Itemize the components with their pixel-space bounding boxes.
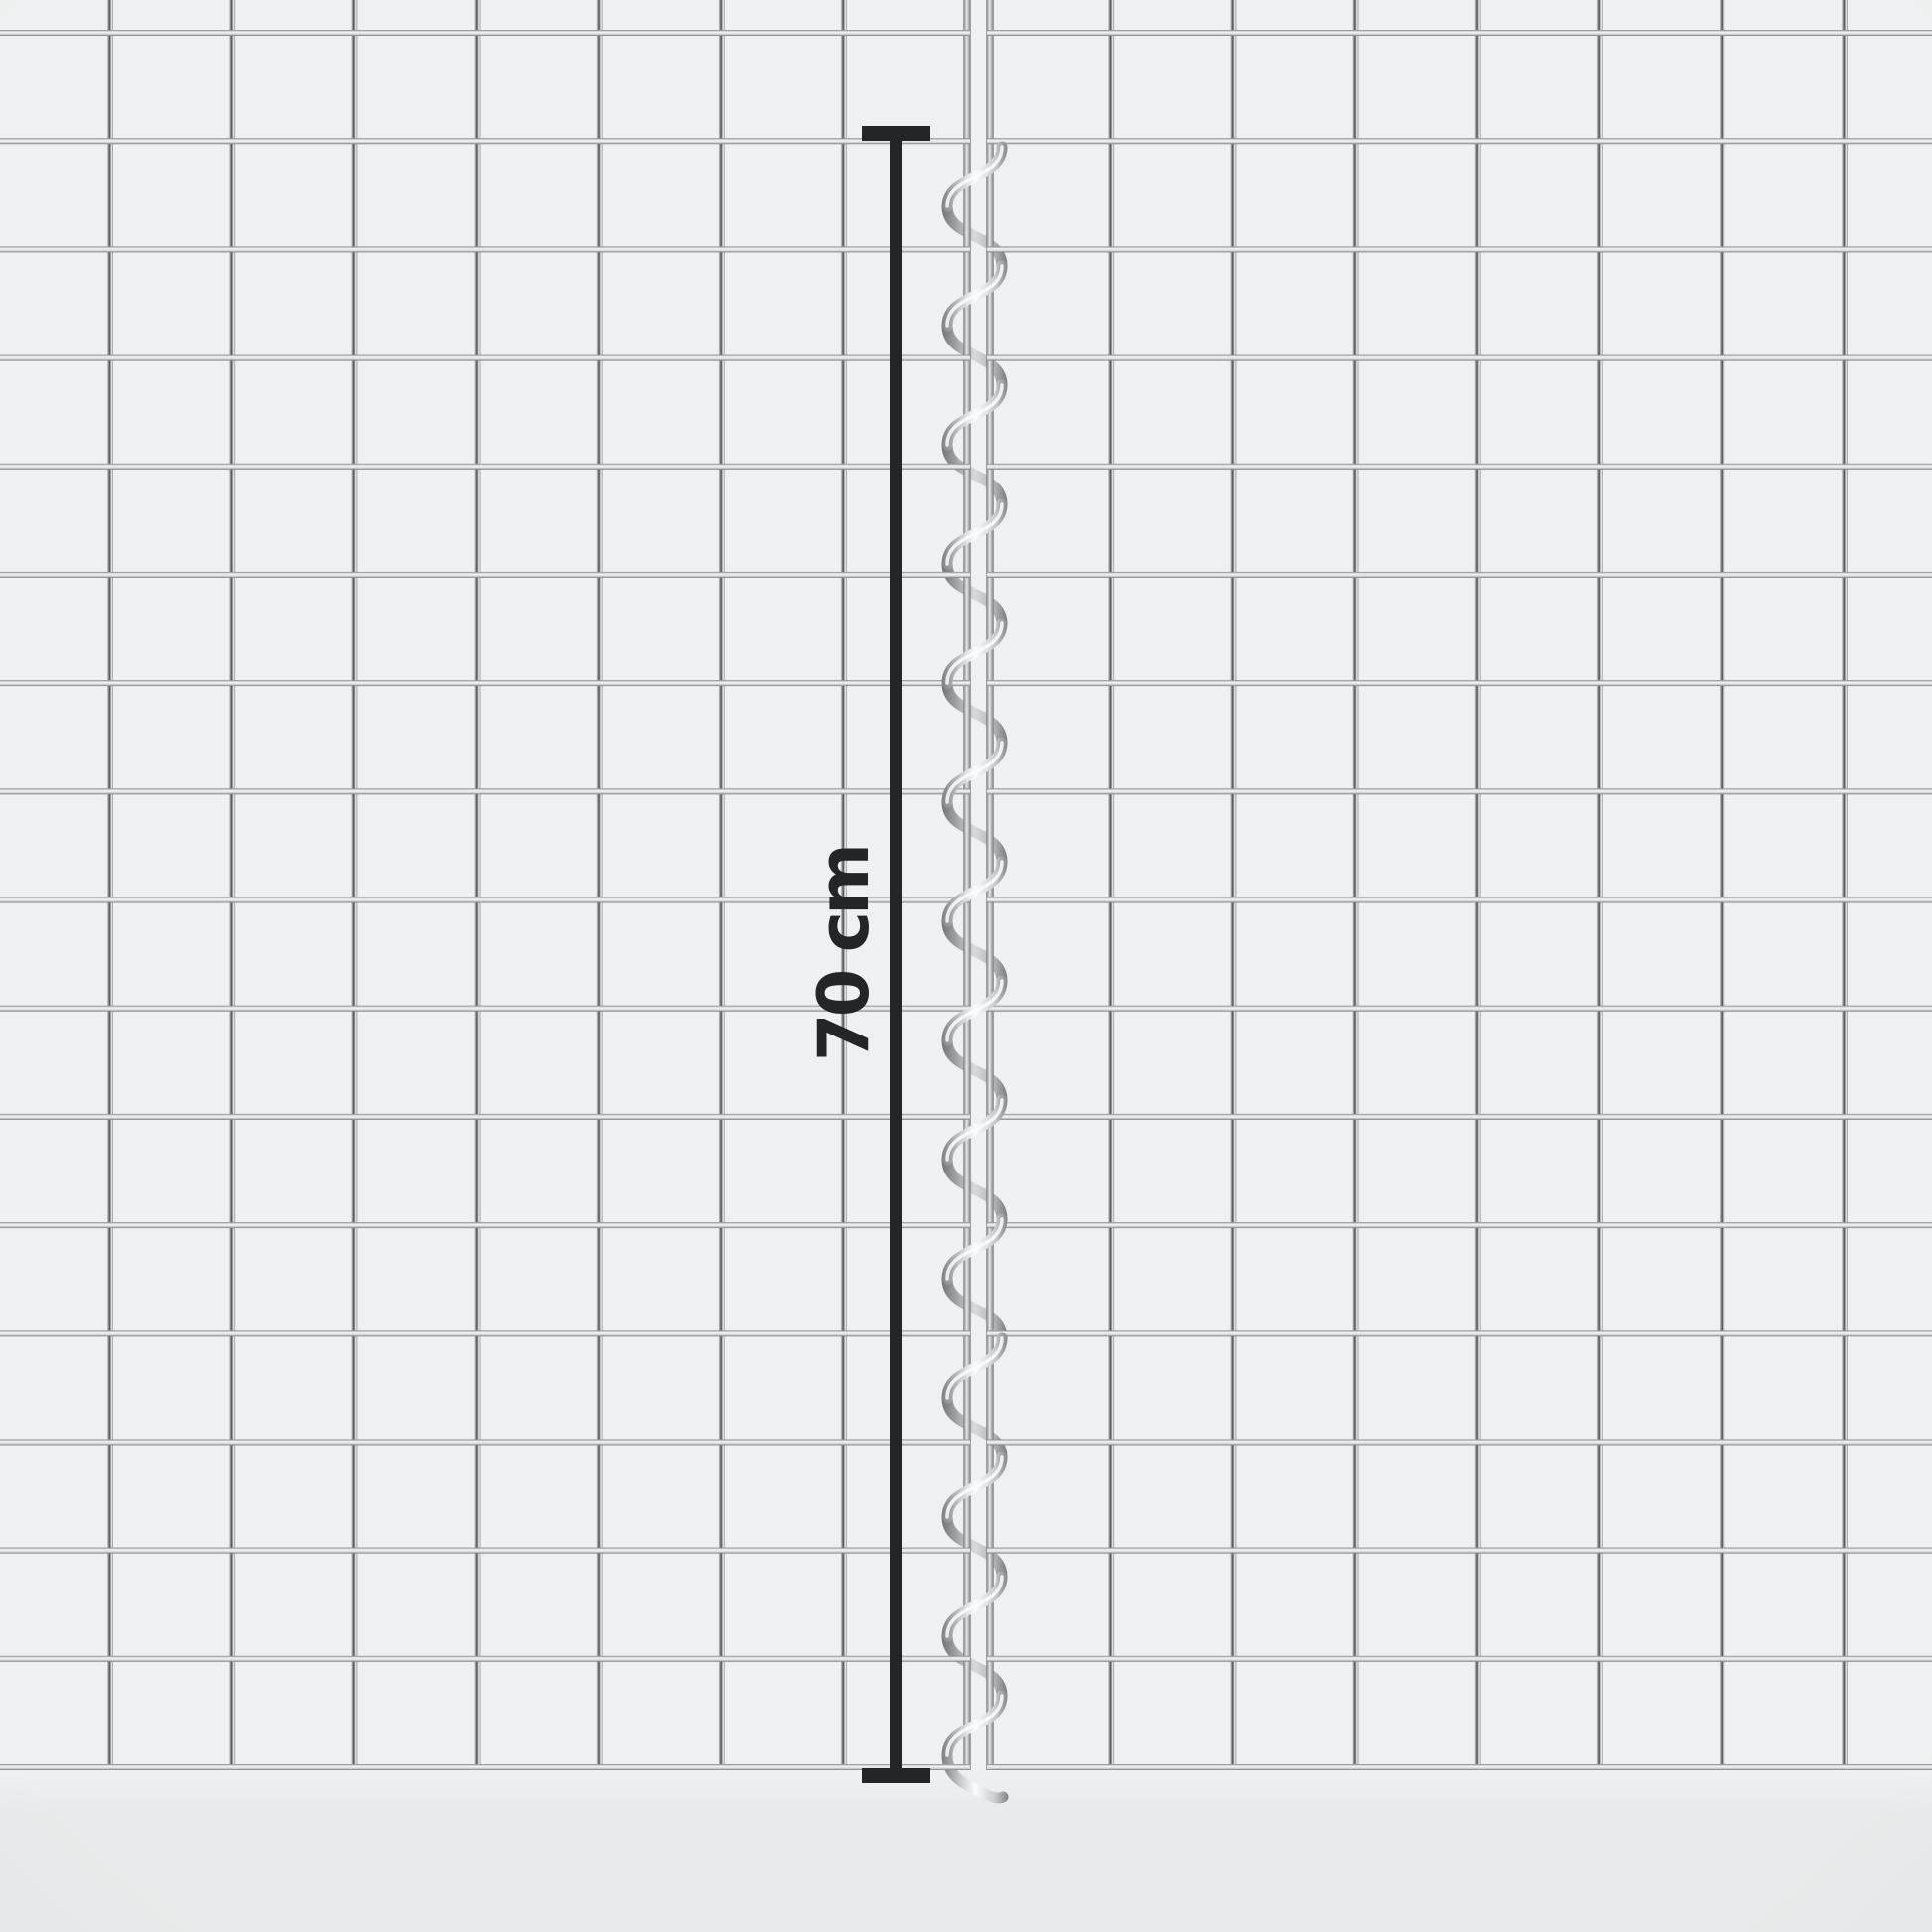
product-photo-mesh-panels: 70 cm [0, 0, 1932, 1932]
floor-background [0, 1770, 1932, 1932]
mesh-and-spiral-illustration [0, 0, 1932, 1932]
